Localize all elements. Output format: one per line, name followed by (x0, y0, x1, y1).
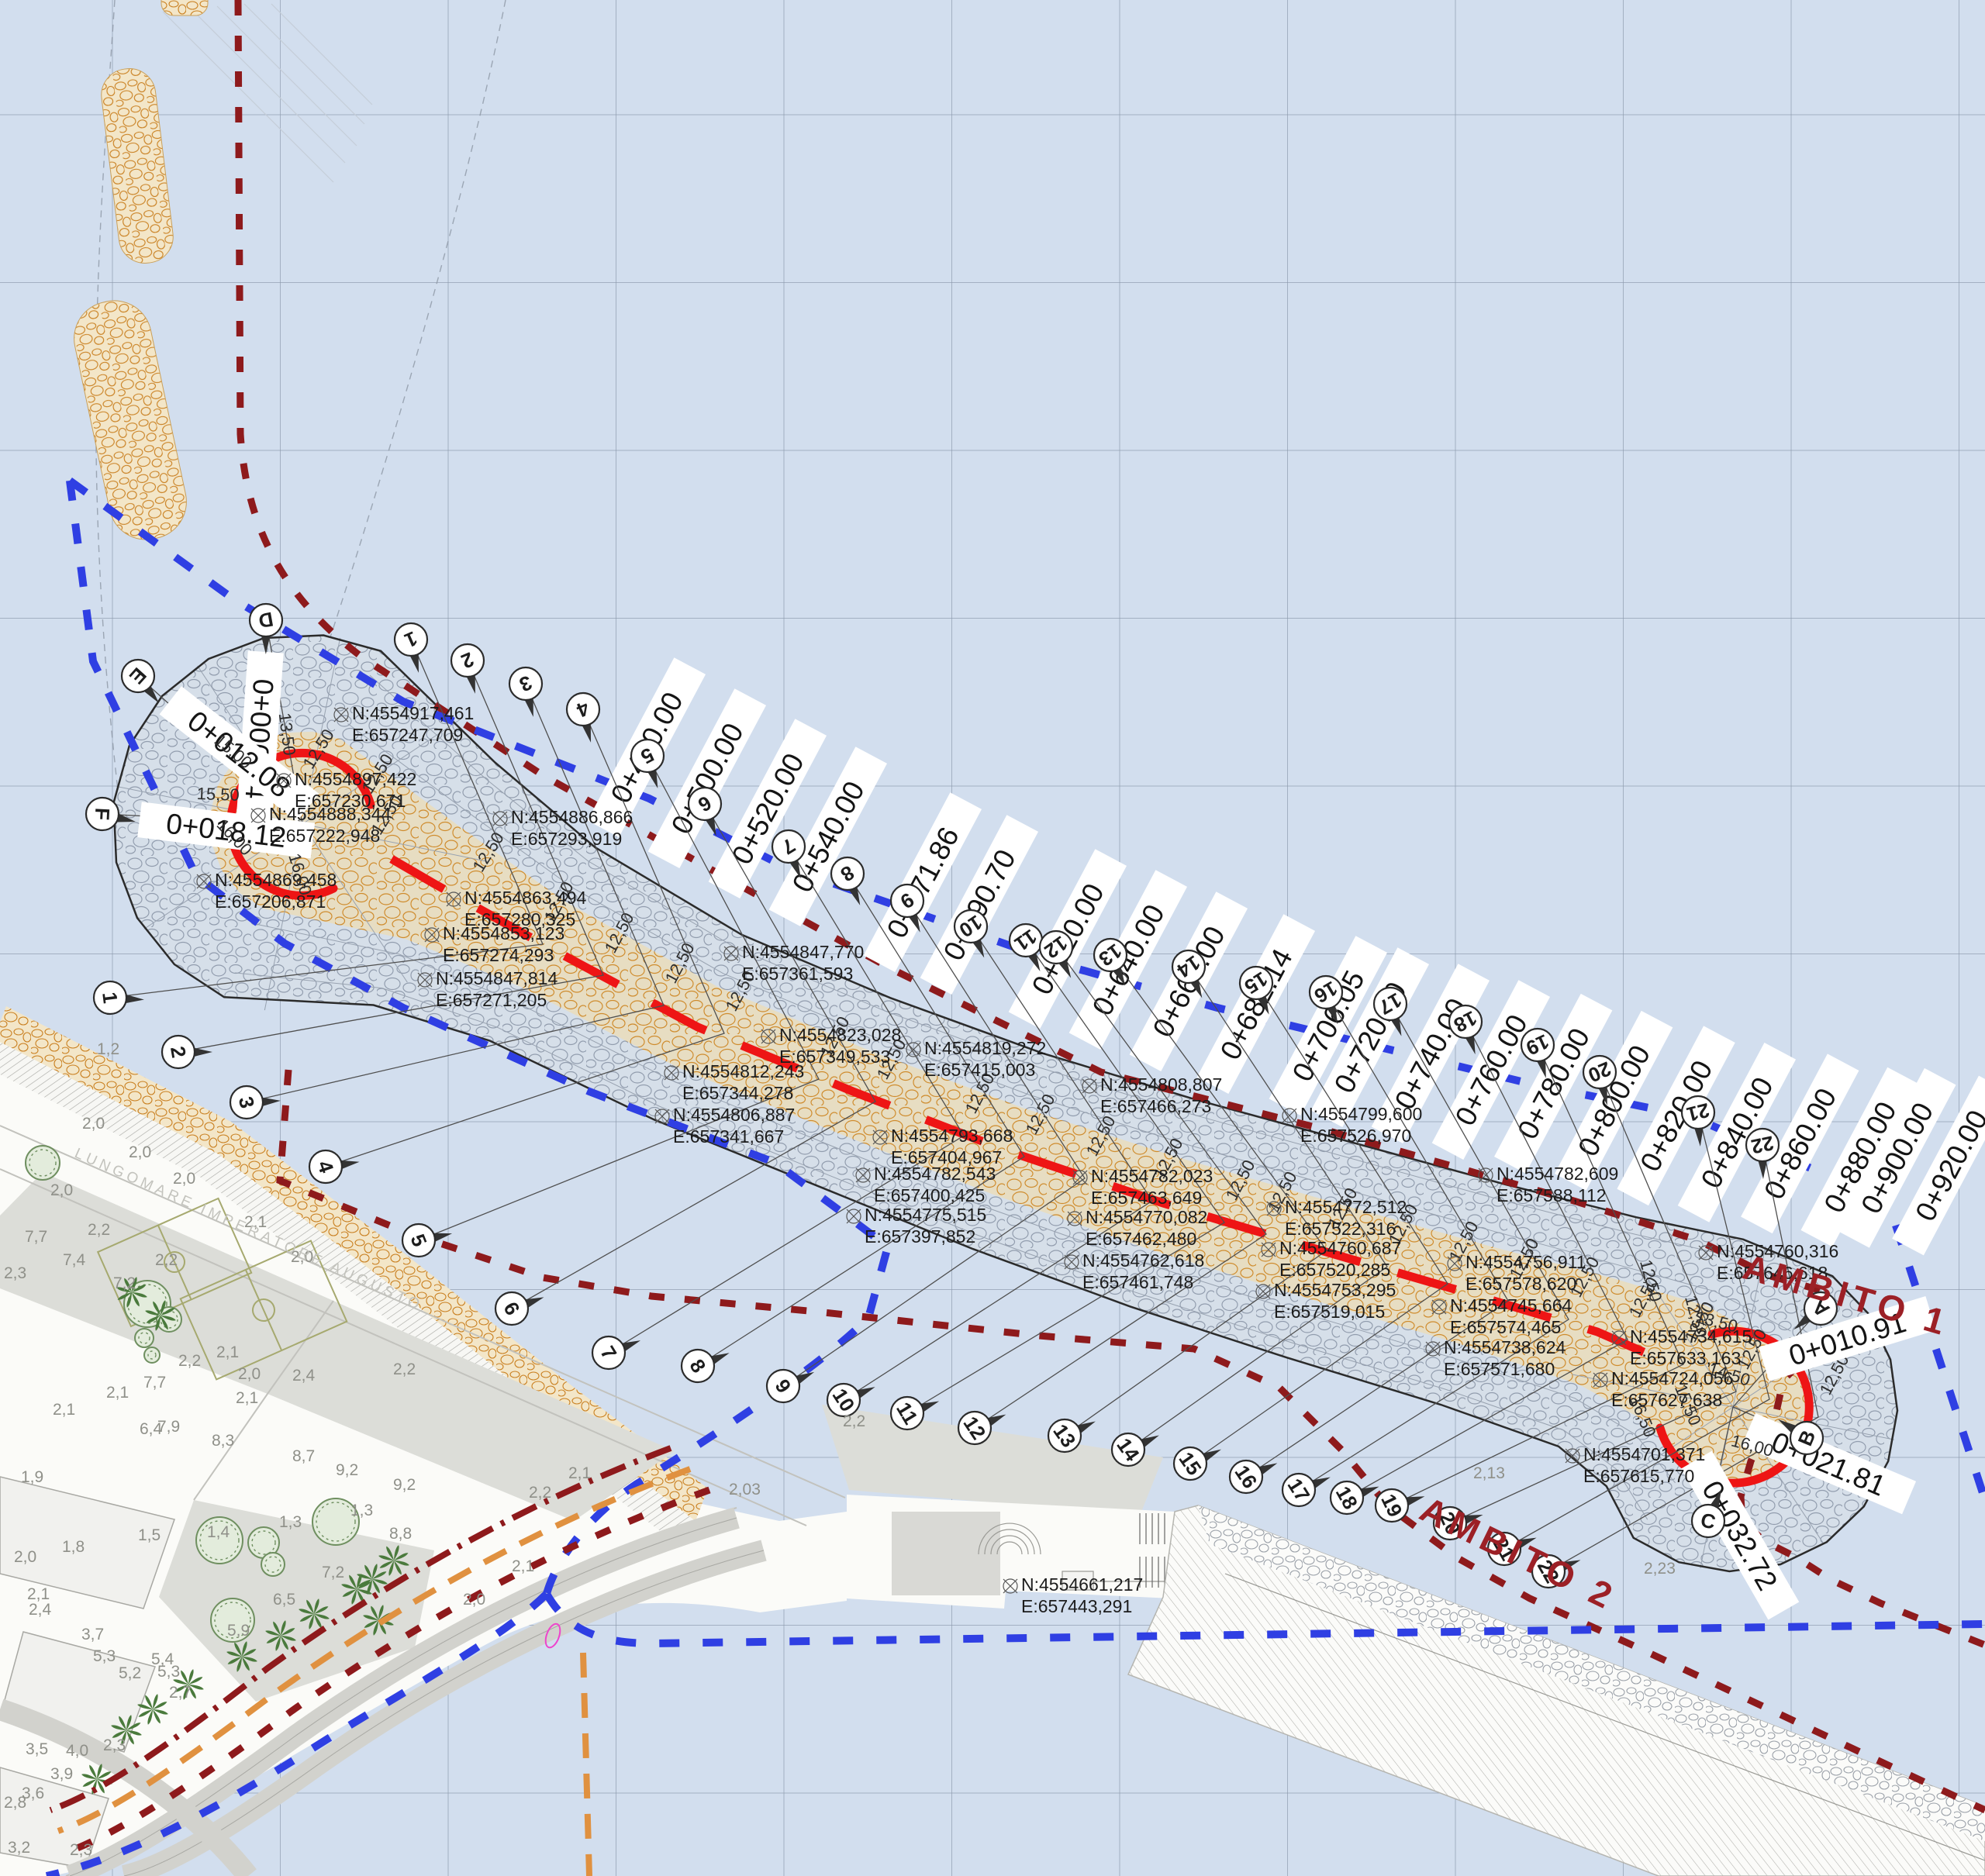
tree (26, 1146, 60, 1180)
spot-elevation: 2,2 (843, 1412, 865, 1430)
spot-elevation: 2,1 (512, 1557, 534, 1575)
coordinate-north: N:4554782,543 (874, 1164, 996, 1184)
coordinate-north: N:4554756,911 (1465, 1252, 1586, 1272)
spot-elevation: 8,3 (212, 1432, 234, 1450)
coordinate-north: N:4554847,770 (742, 942, 864, 962)
marker-number: F (91, 807, 115, 820)
coordinate-north: N:4554793,668 (891, 1126, 1013, 1146)
spot-elevation: 7,7 (143, 1374, 166, 1391)
coordinate-east: E:657400,425 (874, 1185, 985, 1205)
spot-elevation: 2,2 (88, 1221, 110, 1239)
coordinate-north: N:4554753,295 (1274, 1280, 1396, 1300)
coordinate-north: N:4554760,687 (1279, 1238, 1401, 1258)
coordinate-north: N:4554808,807 (1100, 1074, 1222, 1095)
coordinate-east: E:657588,112 (1497, 1185, 1607, 1205)
coordinate-north: N:4554897,422 (295, 769, 416, 789)
coordinate-east: E:657293,919 (511, 829, 622, 849)
spot-elevation: 2,0 (463, 1591, 485, 1609)
coordinate-east: E:657615,770 (1583, 1466, 1694, 1486)
tree (135, 1329, 154, 1347)
coordinate-north: N:4554886,866 (511, 807, 633, 827)
coordinate-east: E:657578,620 (1465, 1274, 1576, 1294)
coordinate-north: N:4554917,461 (352, 703, 474, 723)
spot-elevation: 2,1 (236, 1389, 258, 1407)
spot-elevation: 2,7 (169, 1684, 192, 1702)
coordinate-north: N:4554812,243 (682, 1061, 804, 1081)
coordinate-north: N:4554738,624 (1444, 1337, 1566, 1357)
spot-elevation: 8,8 (389, 1525, 412, 1543)
coordinate-east: E:657206,871 (215, 891, 326, 912)
spot-elevation: 9,2 (393, 1476, 416, 1494)
coordinate-east: E:657462,480 (1086, 1229, 1196, 1249)
coordinate-east: E:657222,948 (269, 826, 380, 846)
spot-elevation: 8,7 (292, 1447, 315, 1465)
pier-block (892, 1512, 1000, 1595)
coordinate-north: N:4554806,887 (673, 1105, 795, 1125)
coordinate-north: N:4554745,664 (1450, 1295, 1572, 1316)
spot-elevation: 2,4 (29, 1601, 52, 1619)
spot-elevation: 2,3 (103, 1736, 126, 1754)
coordinate-east: E:657466,273 (1100, 1096, 1211, 1116)
spot-elevation: 2,1 (216, 1343, 239, 1361)
spot-elevation: 7,2 (113, 1274, 136, 1292)
coordinate-east: E:657522,316 (1285, 1219, 1396, 1239)
spot-elevation: 2,13 (1473, 1464, 1505, 1482)
coordinate-east: E:657463,649 (1091, 1188, 1202, 1208)
spot-elevation: 5,3 (157, 1663, 180, 1681)
coordinate-north: N:4554772,512 (1285, 1197, 1407, 1217)
spot-elevation: 2,0 (14, 1548, 36, 1566)
spot-elevation: 2,1 (568, 1464, 591, 1482)
coordinate-north: N:4554762,618 (1082, 1250, 1204, 1271)
coordinate-east: E:657461,748 (1082, 1272, 1193, 1292)
spot-elevation: 2,8 (4, 1794, 26, 1812)
coordinate-east: E:657571,680 (1444, 1359, 1555, 1379)
spot-elevation: 7,9 (157, 1418, 180, 1436)
spot-elevation: 3,7 (81, 1626, 104, 1643)
spot-elevation: 1,2 (97, 1040, 119, 1058)
spot-elevation: 1,5 (138, 1526, 161, 1544)
coordinate-east: E:657397,852 (865, 1226, 975, 1247)
coordinate-east: E:657574,465 (1450, 1317, 1561, 1337)
coordinate-east: E:657520,285 (1279, 1260, 1390, 1280)
spot-elevation: 4,0 (66, 1742, 88, 1760)
spot-elevation: 2,3 (4, 1264, 26, 1282)
spot-elevation: 2,2 (155, 1251, 178, 1269)
spot-elevation: 2,03 (729, 1481, 761, 1498)
spot-elevation: 2,0 (50, 1181, 73, 1199)
spot-elevation: 7,4 (63, 1251, 86, 1269)
spot-elevation: 1,4 (207, 1523, 230, 1541)
spot-elevation: 1,8 (62, 1538, 85, 1556)
spot-elevation: 2,1 (53, 1401, 75, 1419)
coordinate-east: E:657274,293 (443, 945, 554, 965)
coordinate-north: N:4554799,600 (1300, 1104, 1422, 1124)
spot-elevation: 5,3 (93, 1647, 116, 1665)
coordinate-north: N:4554847,814 (436, 968, 558, 988)
coordinate-east: E:657526,970 (1300, 1126, 1411, 1146)
spot-elevation: 7,7 (25, 1228, 47, 1246)
spot-elevation: 5,2 (119, 1664, 141, 1682)
coordinate-north: N:4554782,609 (1497, 1164, 1618, 1184)
spot-elevation: 2,2 (393, 1360, 416, 1378)
spot-elevation: 9,2 (336, 1461, 358, 1479)
coordinate-east: E:657271,205 (436, 990, 547, 1010)
spot-elevation: 2,4 (292, 1367, 316, 1385)
spot-elevation: 2,0 (173, 1170, 195, 1188)
coordinate-north: N:4554863,494 (464, 888, 587, 908)
dimension-label: 15,50 (196, 784, 240, 805)
coordinate-north: N:4554819,272 (924, 1038, 1046, 1058)
spot-elevation: 2,23 (1644, 1560, 1676, 1578)
site-plan-drawing: 12,500+480.001112,500+500.002212,500+520… (0, 0, 1985, 1876)
coordinate-north: N:4554701,371 (1583, 1444, 1705, 1464)
coordinate-east: E:657247,709 (352, 725, 463, 745)
spot-elevation: 2,1 (106, 1384, 129, 1402)
spot-elevation: 1,3 (350, 1502, 373, 1519)
spot-elevation: 3,5 (26, 1740, 48, 1758)
spot-elevation: 2,0 (129, 1143, 151, 1161)
coordinate-east: E:657443,291 (1021, 1596, 1132, 1616)
coordinate-east: E:657344,278 (682, 1083, 793, 1103)
spot-elevation: 1,9 (21, 1468, 43, 1486)
tree (144, 1347, 160, 1363)
spot-elevation: 2,3 (70, 1841, 92, 1859)
coordinate-north: N:4554869,458 (215, 870, 337, 890)
spot-elevation: 3,2 (8, 1839, 30, 1857)
coordinate-north: N:4554853,123 (443, 923, 564, 943)
coordinate-east: E:657341,667 (673, 1126, 784, 1147)
coordinate-east: E:657519,015 (1274, 1302, 1385, 1322)
coordinate-east: E:657361,593 (742, 964, 853, 984)
coordinate-north: N:4554770,082 (1086, 1207, 1207, 1227)
spot-elevation: 3,9 (50, 1765, 73, 1783)
coordinate-east: E:657415,003 (924, 1060, 1035, 1080)
spot-elevation: 1,3 (279, 1513, 302, 1531)
coordinate-north: N:4554782,023 (1091, 1166, 1213, 1186)
spot-elevation: 2,0 (238, 1365, 261, 1383)
marker-number: 22 (1749, 1131, 1776, 1158)
spot-elevation: 2,2 (178, 1352, 201, 1370)
spot-elevation: 2,0 (82, 1115, 105, 1133)
coordinate-north: N:4554823,028 (779, 1025, 901, 1045)
coordinate-north: N:4554661,217 (1021, 1574, 1143, 1595)
spot-elevation: 2,2 (529, 1484, 551, 1502)
spot-elevation: 5,9 (227, 1622, 250, 1640)
coordinate-north: N:4554775,515 (865, 1205, 986, 1225)
spot-elevation: 6,5 (273, 1591, 295, 1609)
spot-elevation: 7,2 (322, 1564, 344, 1581)
